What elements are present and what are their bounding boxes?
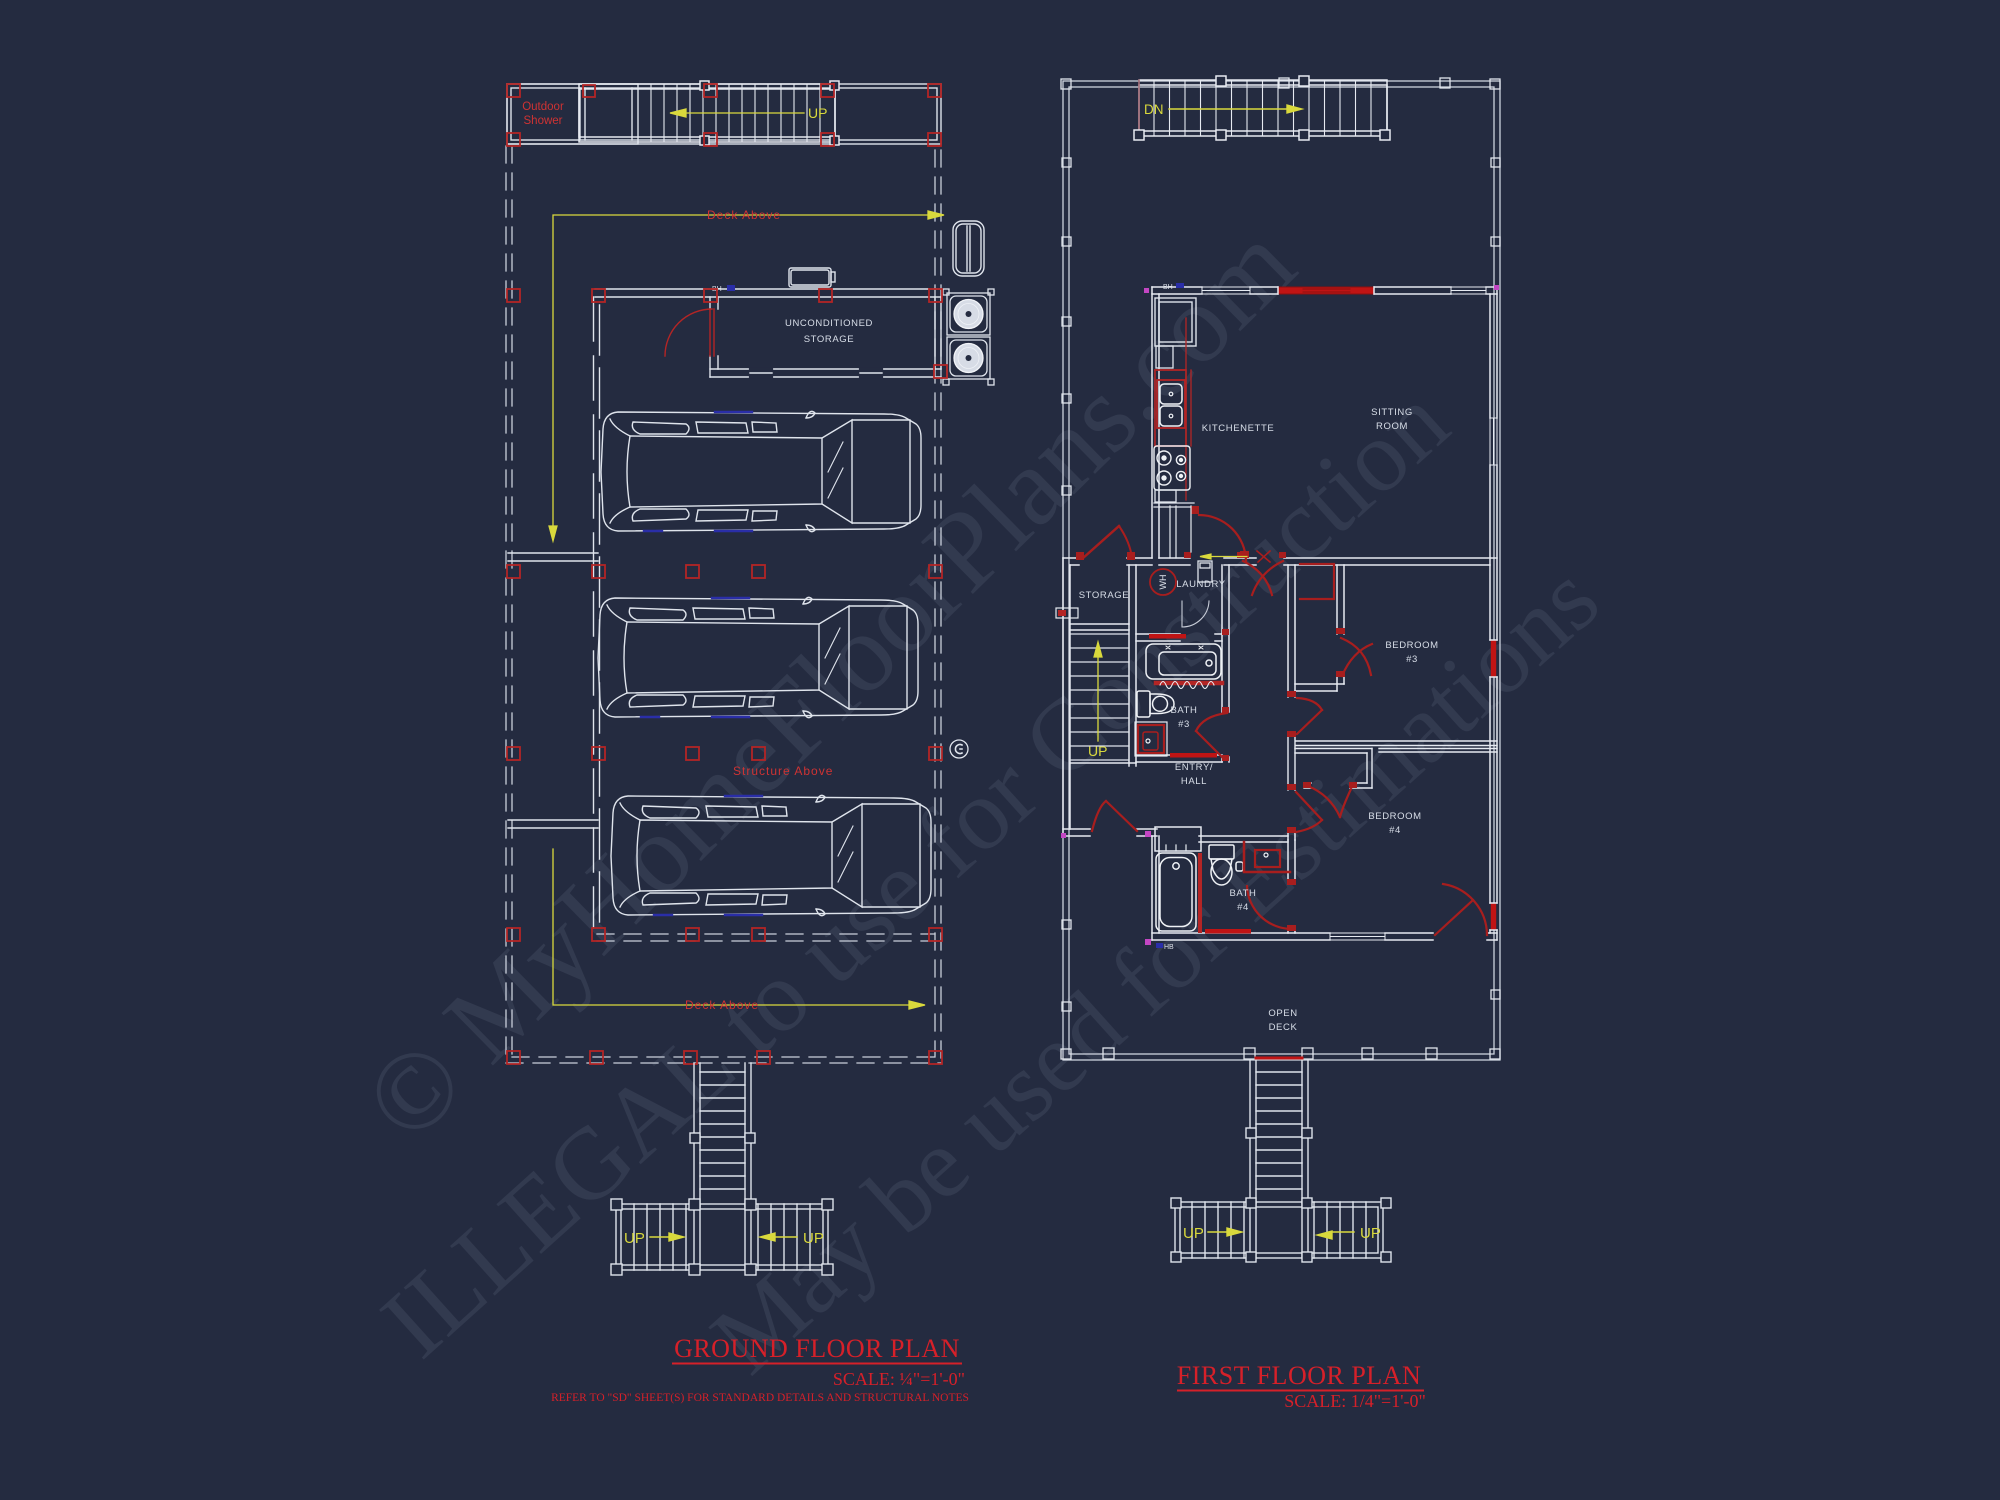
svg-text:DECK: DECK xyxy=(1269,1022,1298,1033)
svg-text:#3: #3 xyxy=(1406,654,1418,665)
svg-text:Deck Above: Deck Above xyxy=(685,998,759,1012)
svg-text:HB: HB xyxy=(1164,944,1174,951)
svg-text:DN: DN xyxy=(1144,102,1164,117)
svg-text:BEDROOM: BEDROOM xyxy=(1385,640,1438,651)
svg-text:UP: UP xyxy=(1183,1225,1204,1242)
svg-text:WH: WH xyxy=(1158,575,1168,590)
svg-text:UNCONDITIONED: UNCONDITIONED xyxy=(785,318,873,329)
svg-text:Shower: Shower xyxy=(524,115,563,127)
svg-text:GROUND FLOOR PLAN: GROUND FLOOR PLAN xyxy=(674,1334,960,1363)
svg-text:ROOM: ROOM xyxy=(1376,421,1408,432)
svg-text:BATH: BATH xyxy=(1170,705,1197,716)
svg-text:STORAGE: STORAGE xyxy=(804,334,854,345)
svg-text:REFER TO "SD" SHEET(S) FOR STA: REFER TO "SD" SHEET(S) FOR STANDARD DETA… xyxy=(551,1392,969,1404)
svg-text:FIRST FLOOR PLAN: FIRST FLOOR PLAN xyxy=(1177,1361,1421,1390)
svg-text:#4: #4 xyxy=(1237,902,1249,913)
svg-text:BATH: BATH xyxy=(1229,888,1256,899)
svg-text:Structure Above: Structure Above xyxy=(733,764,833,778)
svg-text:SITTING: SITTING xyxy=(1371,407,1413,418)
svg-text:BH: BH xyxy=(1163,284,1173,291)
svg-text:UP: UP xyxy=(1360,1225,1381,1242)
svg-text:Deck Above: Deck Above xyxy=(707,208,781,222)
svg-text:KITCHENETTE: KITCHENETTE xyxy=(1202,423,1275,434)
svg-text:OPEN: OPEN xyxy=(1268,1008,1297,1019)
svg-text:HALL: HALL xyxy=(1181,776,1207,787)
svg-text:STORAGE: STORAGE xyxy=(1079,590,1129,601)
svg-text:Outdoor: Outdoor xyxy=(522,101,564,113)
svg-text:BEDROOM: BEDROOM xyxy=(1368,811,1421,822)
svg-text:UP: UP xyxy=(1088,743,1107,759)
svg-text:UP: UP xyxy=(803,1230,824,1247)
svg-text:SCALE: ¼"=1'-0": SCALE: ¼"=1'-0" xyxy=(833,1369,965,1389)
svg-text:LAUNDRY: LAUNDRY xyxy=(1176,579,1225,590)
svg-text:SCALE: 1/4"=1'-0": SCALE: 1/4"=1'-0" xyxy=(1284,1391,1426,1411)
svg-text:ENTRY/: ENTRY/ xyxy=(1175,762,1213,773)
svg-text:UP: UP xyxy=(808,105,827,121)
svg-text:#4: #4 xyxy=(1389,825,1401,836)
svg-text:UP: UP xyxy=(624,1230,645,1247)
svg-text:#3: #3 xyxy=(1178,719,1190,730)
